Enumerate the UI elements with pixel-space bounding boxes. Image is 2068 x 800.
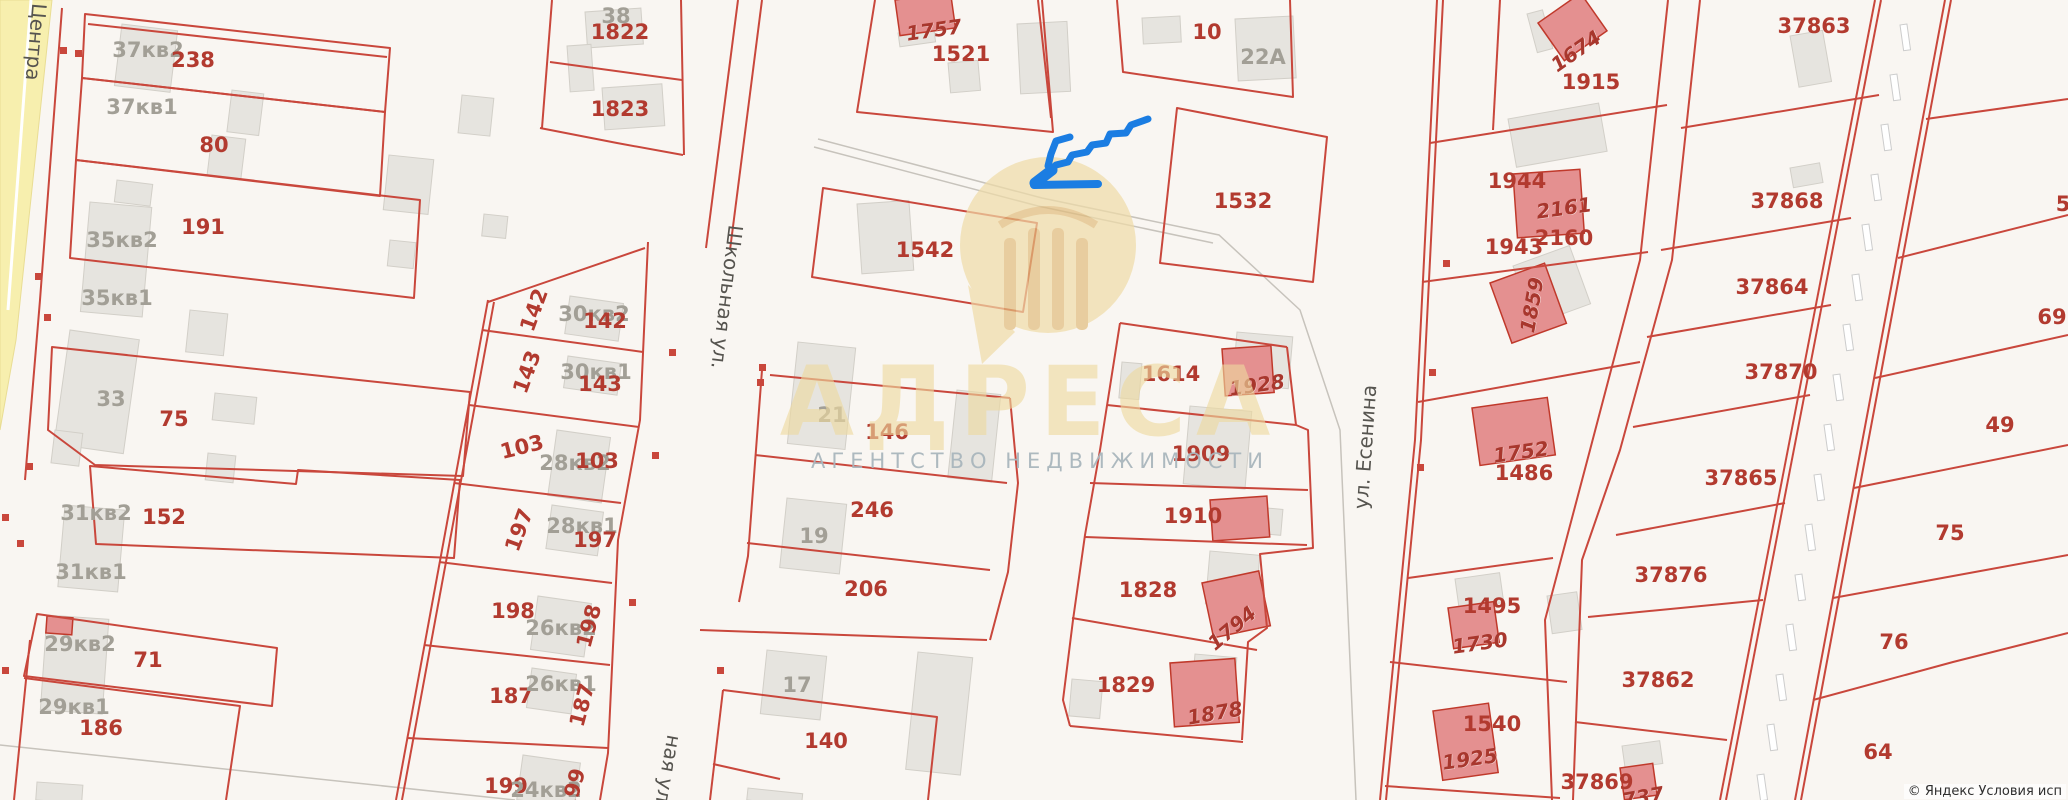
red-buildings-layer bbox=[46, 0, 1657, 800]
map-geometry bbox=[0, 0, 2068, 800]
cadastral-map-canvas[interactable]: ЦентраШкольная ул.ная ул.ул. Есенина37кв… bbox=[0, 0, 2068, 800]
map-attribution[interactable]: © Яндекс Условия исп bbox=[1904, 784, 2066, 799]
parcel-boundaries bbox=[14, 0, 2068, 800]
yellow-road bbox=[0, 0, 52, 430]
road-lane-dashes bbox=[1757, 24, 1911, 800]
